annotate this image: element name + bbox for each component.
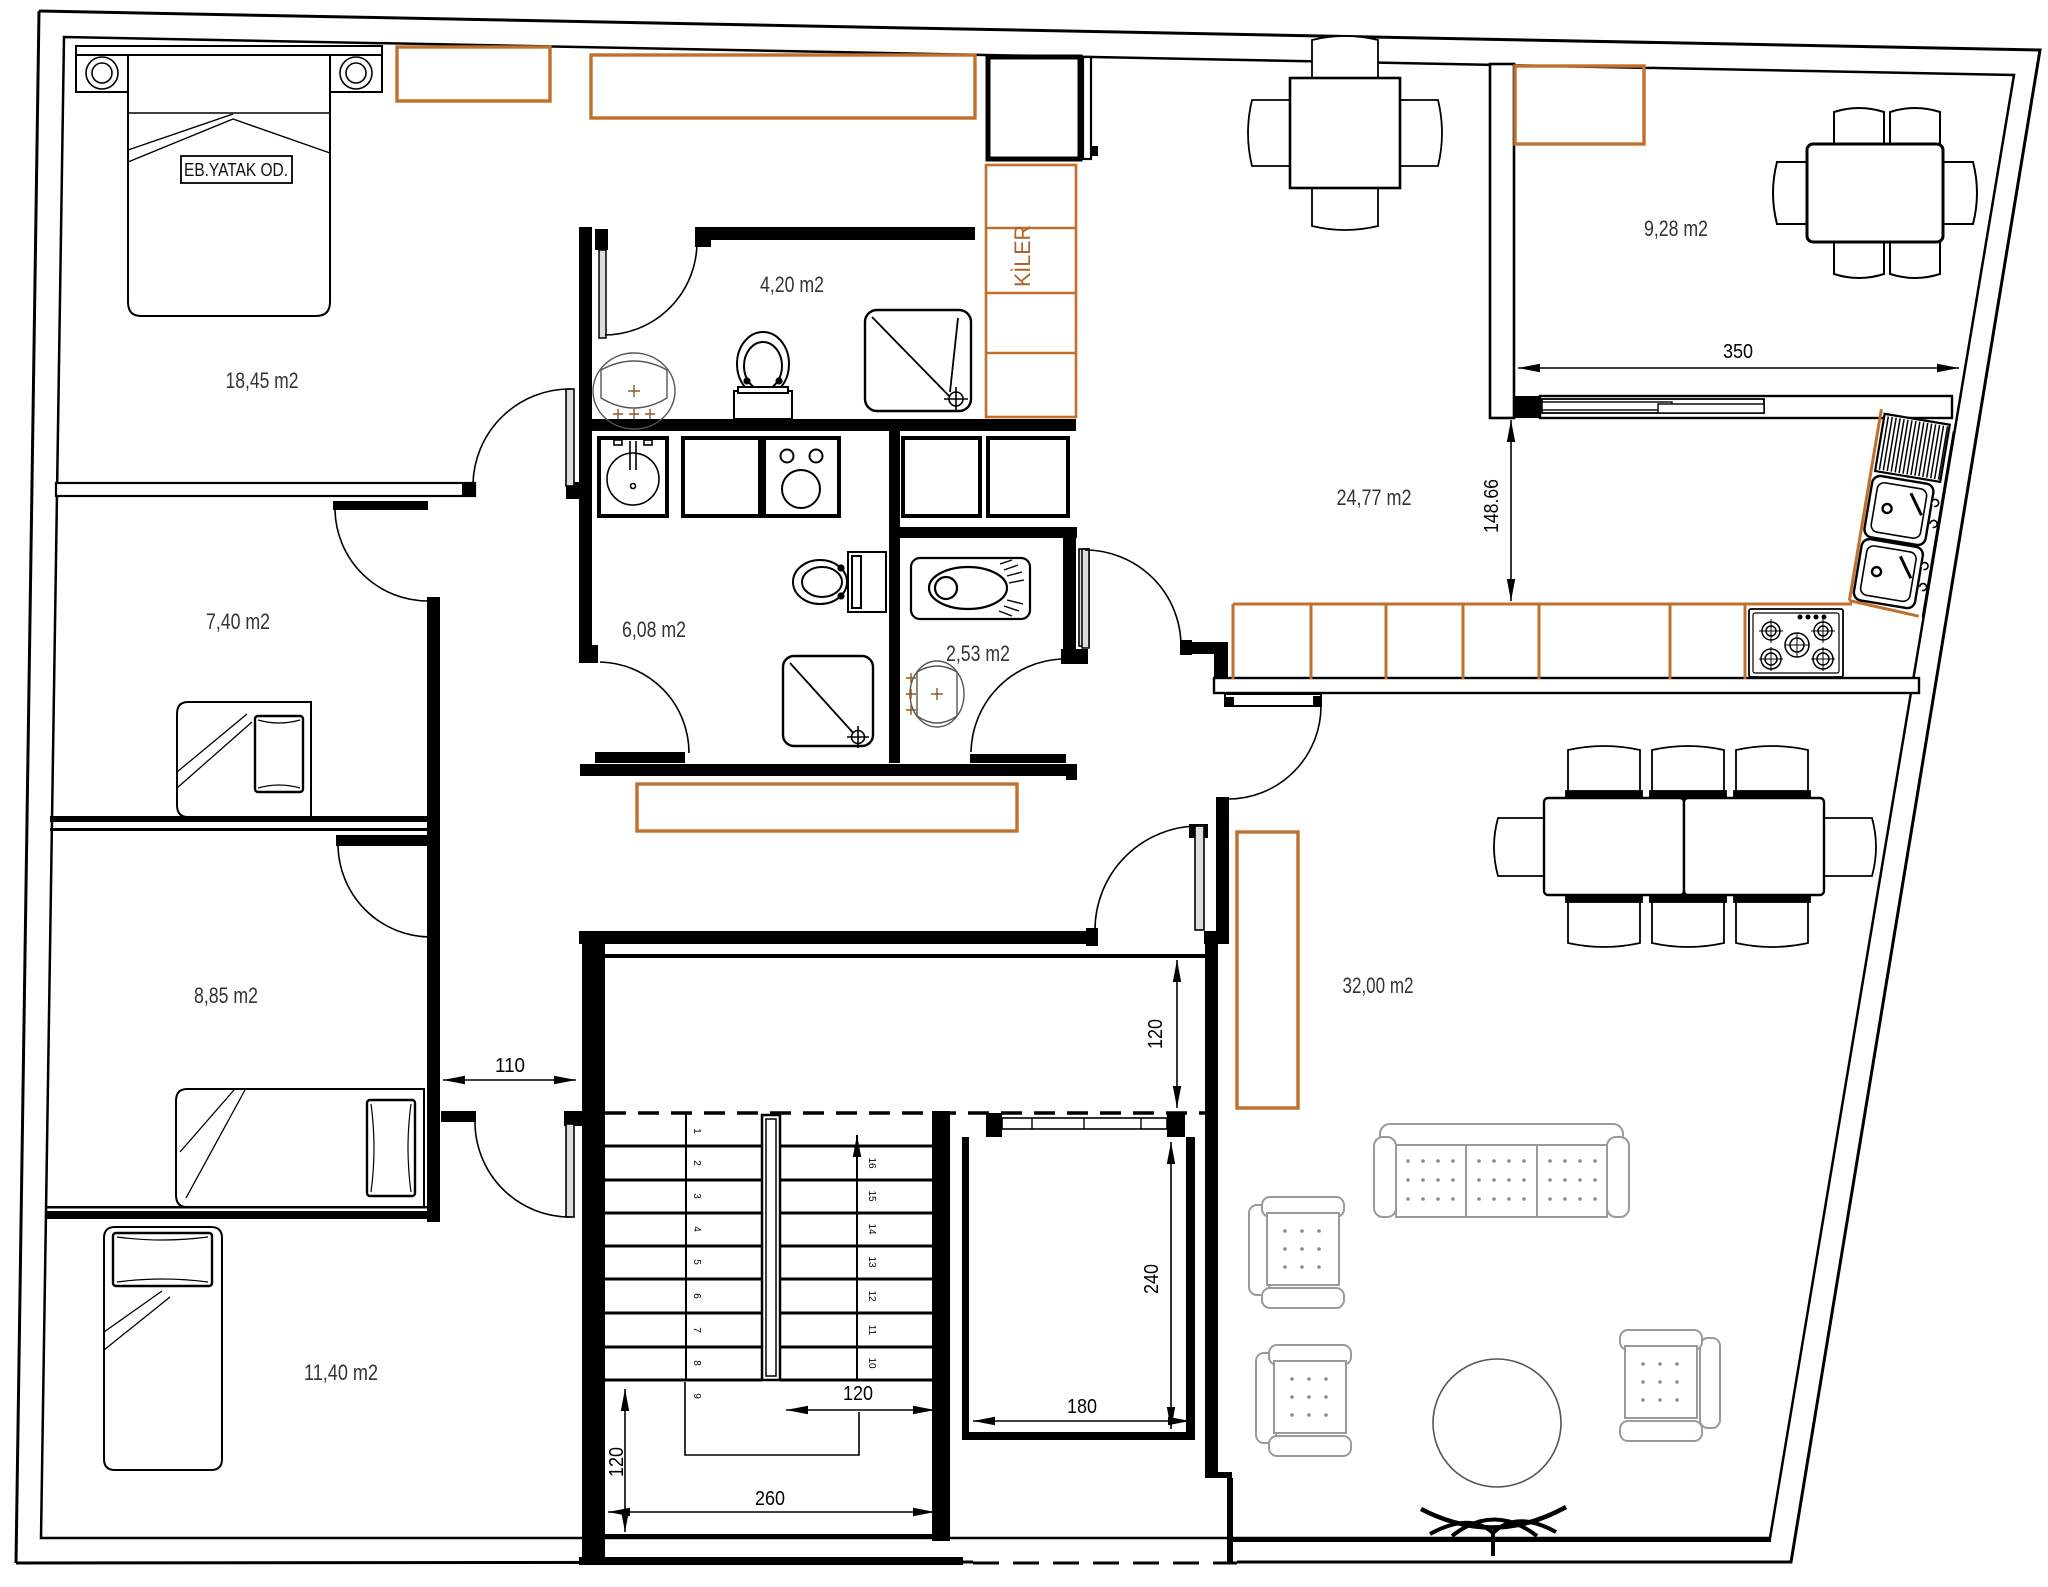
svg-text:12: 12: [866, 1290, 877, 1302]
svg-text:18,45 m2: 18,45 m2: [226, 368, 299, 393]
svg-text:32,00 m2: 32,00 m2: [1343, 973, 1414, 998]
svg-text:9,28 m2: 9,28 m2: [1644, 216, 1708, 241]
svg-text:16: 16: [866, 1157, 877, 1169]
svg-text:2: 2: [691, 1160, 702, 1166]
svg-text:7: 7: [691, 1327, 702, 1333]
svg-text:260: 260: [755, 1488, 785, 1510]
svg-text:11: 11: [866, 1325, 877, 1336]
svg-text:350: 350: [1723, 341, 1753, 363]
svg-text:11,40 m2: 11,40 m2: [304, 1360, 378, 1385]
svg-text:120: 120: [606, 1447, 628, 1477]
svg-text:13: 13: [866, 1256, 877, 1268]
svg-text:5: 5: [691, 1259, 702, 1265]
svg-text:6,08 m2: 6,08 m2: [622, 617, 686, 642]
svg-text:24,77 m2: 24,77 m2: [1337, 485, 1412, 510]
svg-text:EB.YATAK OD.: EB.YATAK OD.: [184, 160, 288, 180]
svg-text:15: 15: [866, 1190, 877, 1202]
svg-text:8,85 m2: 8,85 m2: [194, 983, 258, 1008]
svg-text:6: 6: [691, 1293, 702, 1299]
svg-text:4,20 m2: 4,20 m2: [760, 272, 824, 297]
svg-text:120: 120: [1145, 1019, 1167, 1049]
svg-text:1: 1: [691, 1128, 702, 1134]
svg-text:9: 9: [691, 1393, 702, 1399]
svg-text:2,53 m2: 2,53 m2: [946, 641, 1010, 666]
svg-text:120: 120: [843, 1383, 873, 1405]
svg-text:8: 8: [691, 1360, 702, 1366]
svg-text:7,40 m2: 7,40 m2: [206, 609, 270, 634]
svg-text:4: 4: [691, 1226, 702, 1232]
svg-text:3: 3: [691, 1193, 702, 1199]
svg-text:10: 10: [866, 1357, 877, 1369]
svg-text:14: 14: [866, 1223, 877, 1235]
svg-text:KİLER: KİLER: [1010, 225, 1035, 287]
svg-text:180: 180: [1067, 1396, 1097, 1418]
svg-text:240: 240: [1141, 1264, 1163, 1294]
svg-text:148.66: 148.66: [1481, 479, 1503, 533]
svg-text:110: 110: [495, 1055, 525, 1077]
